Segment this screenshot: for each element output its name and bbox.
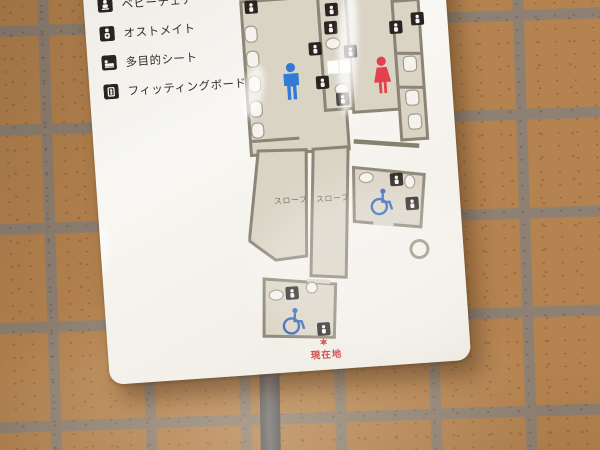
stall-divider-2: [398, 85, 424, 89]
ostomate-icon: [99, 26, 115, 42]
facility-icon: [316, 75, 330, 89]
facility-icon: [308, 42, 322, 56]
facility-icon: [324, 21, 338, 35]
legend-label: オストメイト: [123, 20, 196, 41]
facility-icon: [389, 20, 403, 34]
legend-label: ベビーチェア: [121, 0, 194, 12]
legend-label: 多目的シート: [125, 49, 198, 70]
facility-icon: [410, 12, 424, 26]
legend: ベビーチェア オストメイト 多目的シート: [97, 0, 248, 107]
photo-of-restroom-map-sign: ベビーチェア オストメイト 多目的シート: [0, 0, 600, 450]
fitting-board-icon: [103, 84, 119, 100]
multipurpose-seat-icon: [101, 55, 117, 71]
facility-icon: [244, 0, 258, 14]
baby-chair-icon: [97, 0, 113, 13]
stall-divider-1: [396, 51, 422, 55]
facility-icon: [325, 3, 339, 17]
restroom-map-sign-board: ベビーチェア オストメイト 多目的シート: [80, 0, 471, 385]
legend-label: フィッティングボード: [127, 74, 247, 98]
